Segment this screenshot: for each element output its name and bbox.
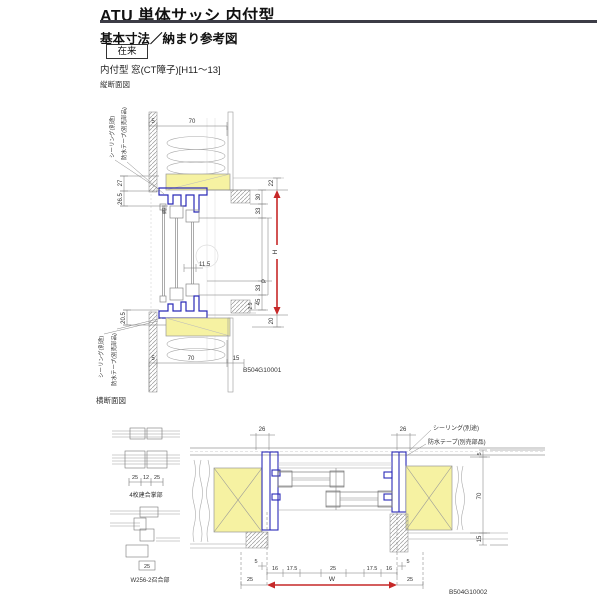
dim-wall-5: 5 (477, 452, 483, 455)
dim-16-right: 16 (386, 566, 392, 572)
dim-right-33-lower: 33 (256, 284, 262, 291)
callout-tape-bottom: 防水テープ(別売部品) (110, 333, 118, 386)
plan-right-wall (384, 452, 508, 552)
dim-mid-11-5: 11.5 (199, 262, 211, 268)
left-jamb-frame (262, 452, 280, 530)
dim-wall-15: 15 (477, 535, 483, 542)
dim-top-right-26: 26 (400, 427, 407, 433)
dim-bot-70: 70 (188, 356, 195, 362)
dim-small-5-right: 5 (406, 559, 409, 565)
dim-bottom (149, 340, 244, 392)
interior-casing-head (231, 190, 250, 203)
detail2-label: W256-2召合部 (130, 576, 169, 584)
dim-left-27: 27 (118, 179, 124, 186)
dim-top-70: 70 (189, 119, 196, 125)
dim-wall-70: 70 (477, 492, 483, 499)
dim-width-w: W (329, 576, 336, 583)
catalog-page: ATU 単体サッシ 内付型 基本寸法／納まり参考図 在来 内付型 窓(CT障子)… (0, 0, 600, 600)
detail1-label: 4枚建合掌部 (129, 491, 162, 499)
height-dimension-arrow: H (272, 190, 281, 315)
dim-right-22: 22 (269, 179, 275, 186)
detail1-dim-25b: 25 (154, 475, 160, 481)
technical-drawings: 縦断面図 (0, 0, 600, 600)
dim-small-5-left: 5 (254, 559, 257, 565)
drawing-code-horizontal: B504G10002 (449, 589, 488, 596)
dim-left-26-5: 26.5 (118, 193, 124, 205)
dim-17-5-right: 17.5 (367, 566, 378, 572)
left-casing (246, 532, 268, 548)
detail1-dim-25a: 25 (132, 475, 138, 481)
horizontal-section-drawing: 横断面図 25 12 25 4枚建合掌部 (96, 395, 545, 596)
dim-right-33-upper: 33 (256, 207, 262, 214)
plan-sashes (278, 463, 392, 510)
dim-top (149, 114, 227, 136)
plan-wall-band (190, 448, 545, 455)
callout-tape-top: 防水テープ(別売部品) (120, 107, 128, 160)
sash-glazing (160, 204, 218, 302)
caption-vertical-section: 縦断面図 (100, 79, 130, 89)
callout-sealing: シーリング(別途) (433, 424, 479, 432)
right-casing (390, 514, 408, 552)
detail-meeting-stile (110, 507, 180, 570)
callout-tape: 防水テープ(別売部品) (428, 438, 486, 446)
dim-left-20-5: 20.5 (121, 312, 127, 324)
detail2-dim-25: 25 (144, 564, 150, 570)
plan-left-wall (190, 452, 280, 548)
dim-26-right (391, 433, 416, 450)
dim-right-45: 45 (256, 298, 262, 305)
callout-sealing-top: シーリング(別途) (108, 116, 116, 158)
dim-out-right-25: 25 (407, 577, 413, 583)
dim-right-2-5: 2.5 (248, 302, 254, 309)
dim-right-30: 30 (256, 193, 262, 200)
caption-horizontal-section: 横断面図 (96, 395, 126, 405)
width-dimension-arrow: W (267, 576, 397, 589)
dim-right-p: P (262, 279, 268, 283)
dim-26-left (250, 433, 275, 450)
right-jamb-frame (384, 452, 406, 512)
detail1-dim-12: 12 (143, 475, 149, 481)
dim-17-5-left: 17.5 (287, 566, 298, 572)
dim-bot-15: 15 (233, 356, 240, 362)
insulation-coil (167, 137, 225, 150)
wall-head (149, 112, 284, 203)
dim-height-h: H (272, 249, 279, 254)
dim-top-left-26: 26 (259, 427, 266, 433)
dim-out-left-25: 25 (247, 577, 253, 583)
dim-right-20: 20 (269, 317, 275, 324)
dim-25-center: 25 (330, 566, 336, 572)
vertical-section-drawing: 縦断面図 (97, 79, 288, 392)
wall-sill (149, 300, 256, 392)
callout-sealing-bottom: シーリング(別途) (97, 336, 105, 378)
drawing-code-vertical: B504G10001 (243, 367, 282, 374)
dim-16-left: 16 (272, 566, 278, 572)
